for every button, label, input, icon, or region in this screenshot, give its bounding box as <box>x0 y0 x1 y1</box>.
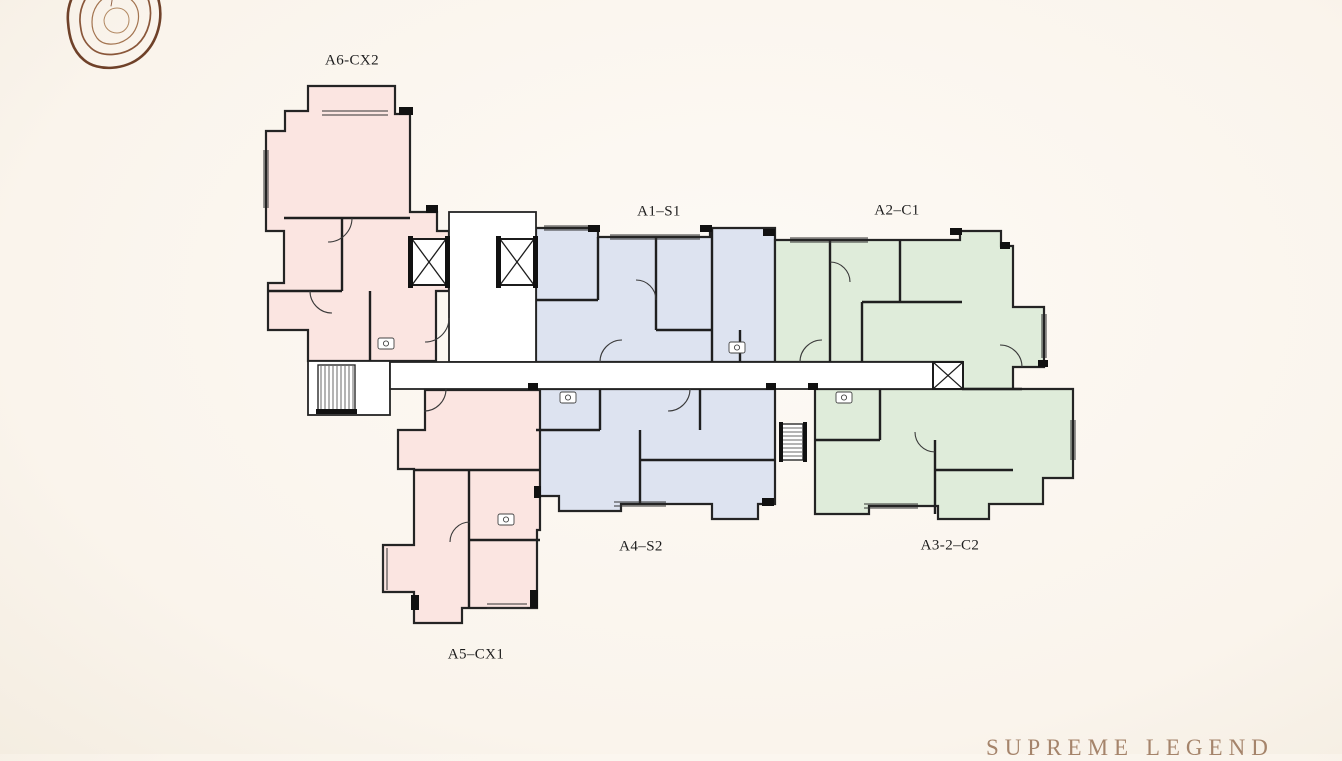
elevator-icon <box>496 236 538 288</box>
brand-wordmark: SUPREME LEGEND <box>986 735 1274 761</box>
elevator-icon <box>933 362 963 389</box>
unit-region-a4-s2 <box>536 389 775 519</box>
unit-label-a1-s1: A1–S1 <box>637 204 681 221</box>
elevator-icon <box>408 236 450 288</box>
stairs-icon <box>316 365 357 414</box>
unit-label-a2-c1: A2–C1 <box>874 203 919 220</box>
unit-region-a6-cx2 <box>266 86 449 361</box>
unit-region-a3-2-c2 <box>815 389 1073 519</box>
tree-rings-logo-icon <box>56 0 171 72</box>
unit-label-a6-cx2: A6-CX2 <box>325 53 379 70</box>
unit-label-a3-2-c2: A3-2–C2 <box>921 538 980 555</box>
unit-region-a5-cx1 <box>383 390 540 623</box>
unit-label-a5-cx1: A5–CX1 <box>448 647 505 664</box>
stairs-icon <box>779 422 807 462</box>
floorplan-drawing <box>0 0 1342 754</box>
floorplan-page: A6-CX2 A1–S1 A2–C1 A4–S2 A3-2–C2 A5–CX1 … <box>0 0 1342 754</box>
unit-label-a4-s2: A4–S2 <box>619 539 663 556</box>
